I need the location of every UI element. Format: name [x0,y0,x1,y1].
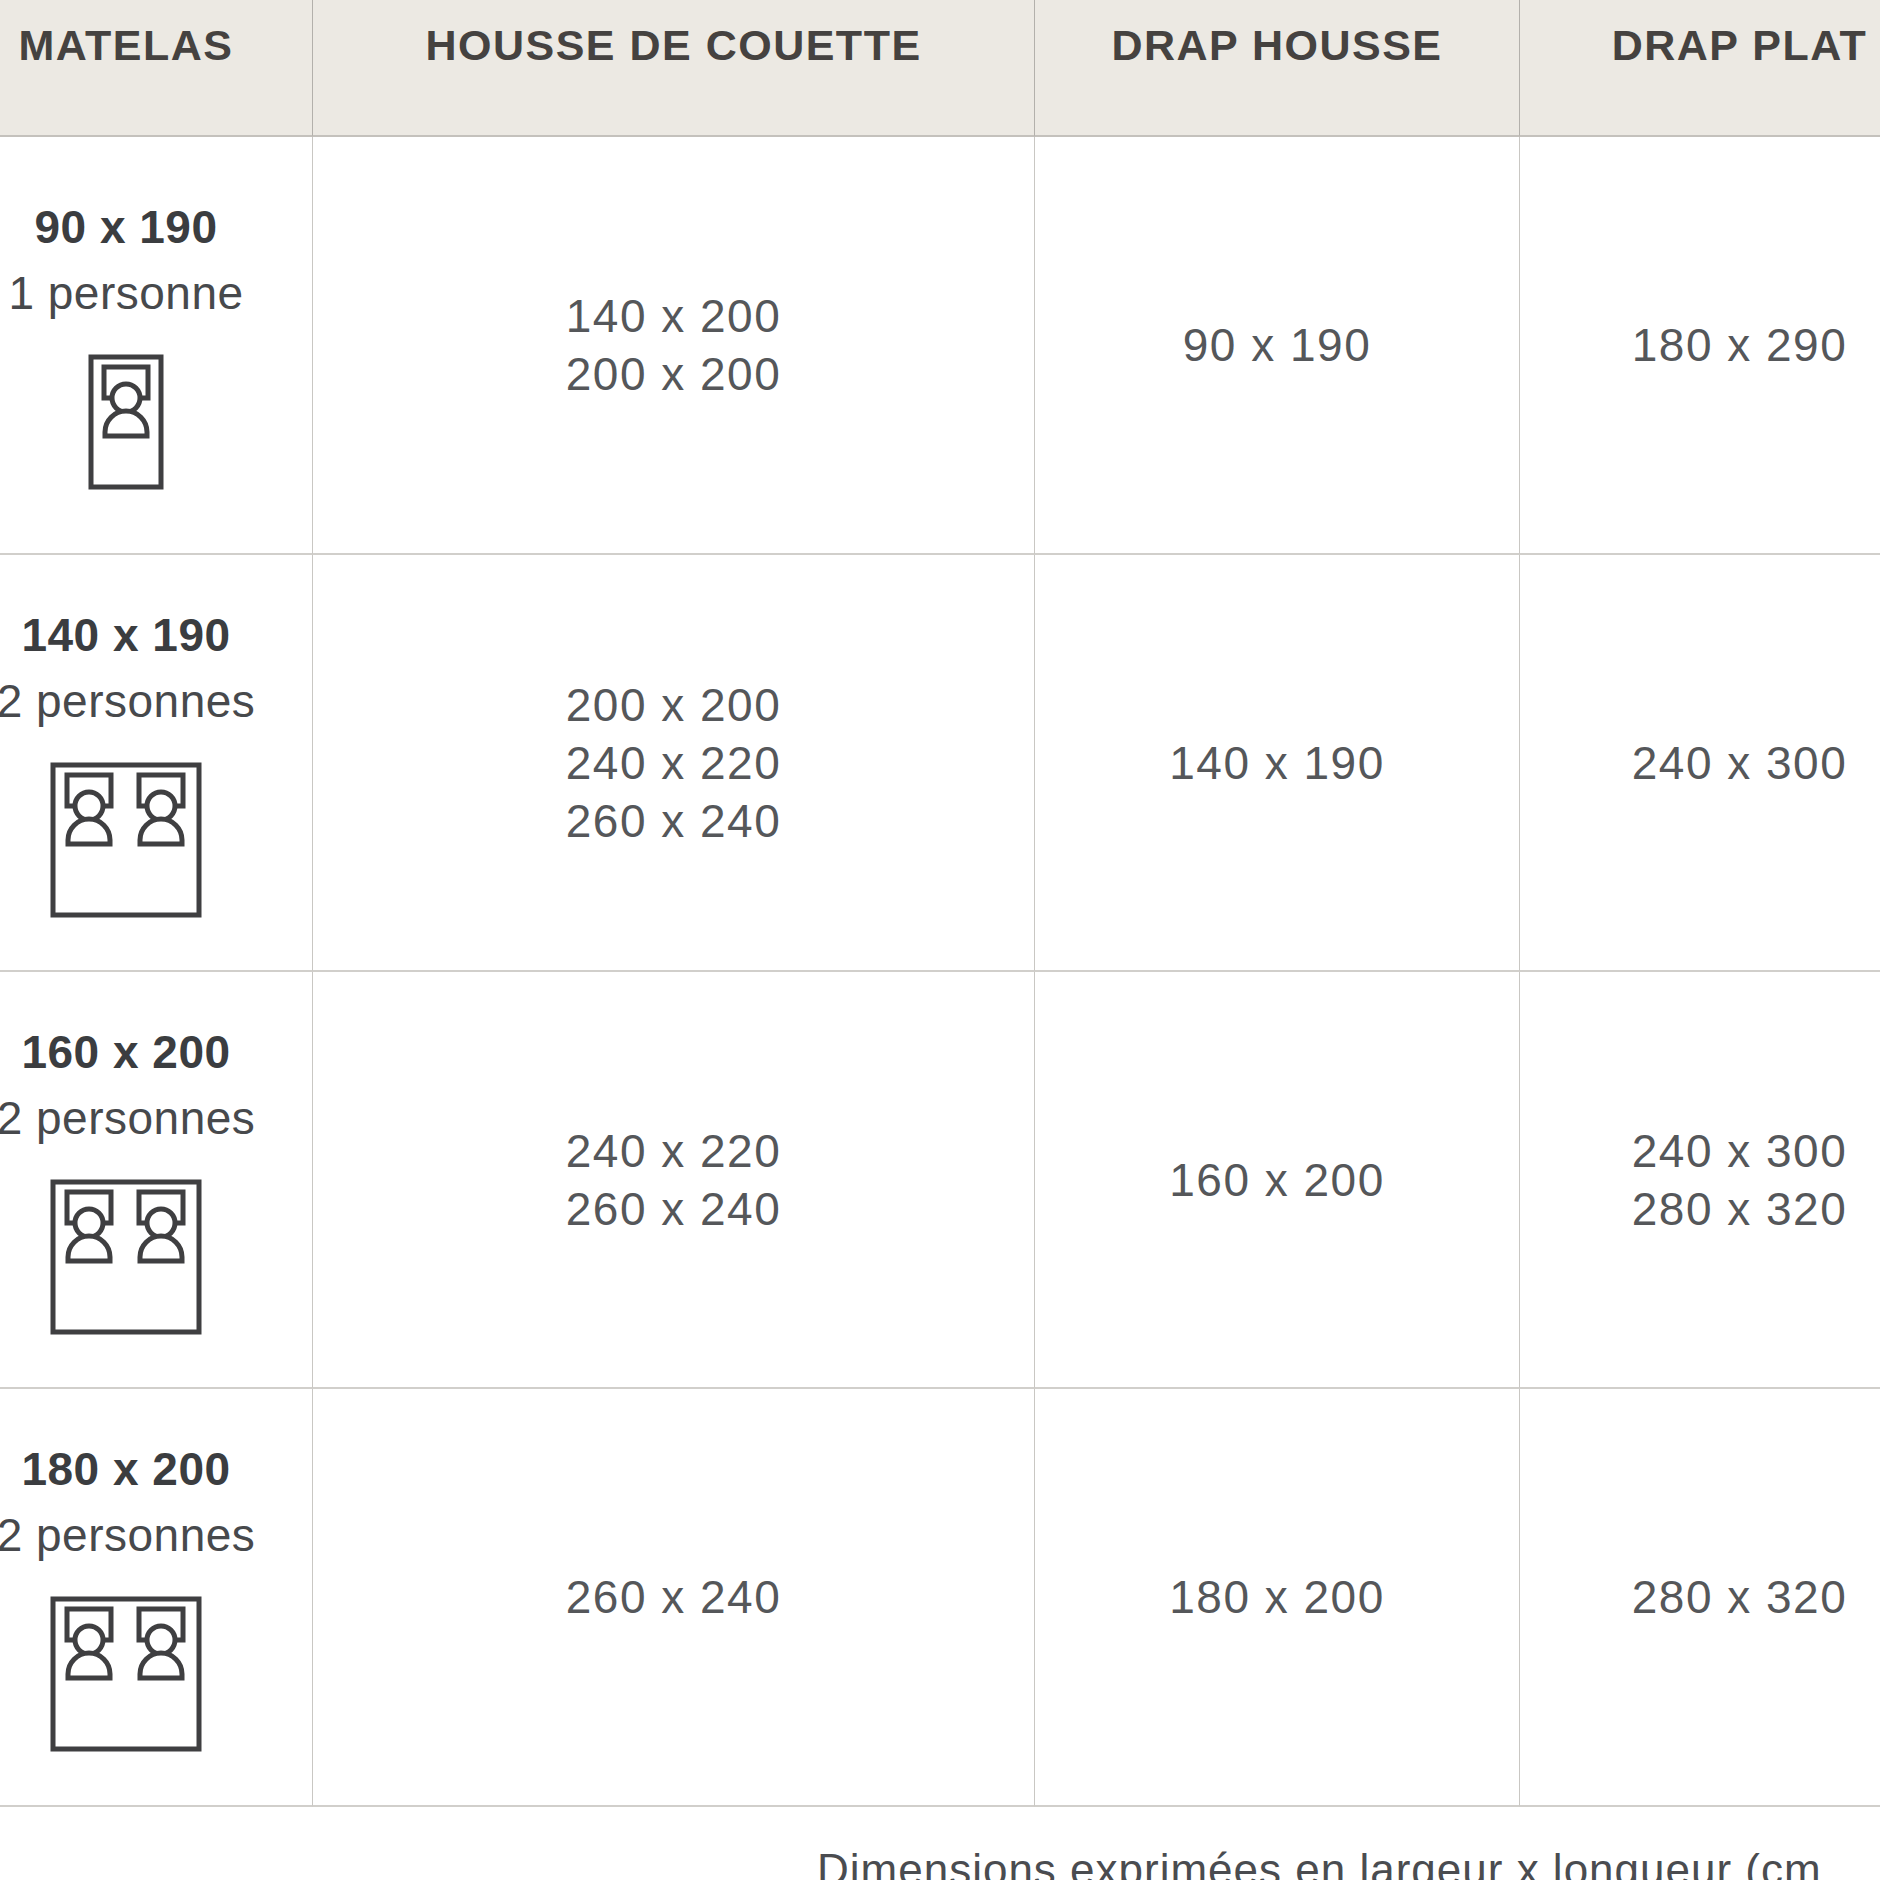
size-value: 260 x 240 [566,792,782,850]
table-row-3-matelas: 160 x 200 2 personnes [0,972,313,1389]
capacity-label: 2 personnes [0,674,255,728]
table-row-4-drap-plat: 280 x 320 [1520,1389,1880,1807]
size-value: 140 x 190 [1169,734,1385,792]
table-row-3-drap-housse: 160 x 200 [1035,972,1520,1389]
size-value: 280 x 320 [1632,1568,1848,1626]
column-header-label: MATELAS [18,21,233,70]
table-row-2-housse-de-couette: 200 x 200 240 x 220 260 x 240 [313,555,1035,972]
double-bed-icon [50,762,202,918]
size-value: 240 x 220 [566,734,782,792]
size-value: 280 x 320 [1632,1180,1848,1238]
size-value: 160 x 200 [1169,1151,1385,1209]
double-bed-icon [50,1596,202,1752]
size-value: 240 x 300 [1632,1122,1848,1180]
table-row-3-housse-de-couette: 240 x 220 260 x 240 [313,972,1035,1389]
mattress-size-label: 160 x 200 [21,1025,230,1079]
size-value: 260 x 240 [566,1180,782,1238]
size-value: 240 x 220 [566,1122,782,1180]
table-row-1-drap-housse: 90 x 190 [1035,137,1520,555]
column-header-label: HOUSSE DE COUETTE [425,21,921,70]
column-header-label: DRAP PLAT [1612,21,1868,70]
table-row-1-drap-plat: 180 x 290 [1520,137,1880,555]
single-bed-icon [88,354,164,490]
capacity-label: 2 personnes [0,1508,255,1562]
table-row-3-drap-plat: 240 x 300 280 x 320 [1520,972,1880,1389]
column-header-housse-de-couette: HOUSSE DE COUETTE [313,0,1035,137]
table-row-2-drap-housse: 140 x 190 [1035,555,1520,972]
mattress-size-label: 140 x 190 [21,608,230,662]
size-value: 200 x 200 [566,345,782,403]
dimensions-note: Dimensions exprimées en largeur x longue… [817,1845,1822,1880]
column-header-drap-plat: DRAP PLAT [1520,0,1880,137]
size-guide-page: MATELAS HOUSSE DE COUETTE DRAP HOUSSE DR… [0,0,1880,1880]
column-header-label: DRAP HOUSSE [1111,21,1442,70]
mattress-size-label: 180 x 200 [21,1442,230,1496]
size-value: 200 x 200 [566,676,782,734]
table-row-4-drap-housse: 180 x 200 [1035,1389,1520,1807]
table-row-1-housse-de-couette: 140 x 200 200 x 200 [313,137,1035,555]
size-value: 240 x 300 [1632,734,1848,792]
table-row-2-drap-plat: 240 x 300 [1520,555,1880,972]
column-header-drap-housse: DRAP HOUSSE [1035,0,1520,137]
double-bed-icon [50,1179,202,1335]
column-header-matelas: MATELAS [0,0,313,137]
capacity-label: 1 personne [8,266,243,320]
table-row-2-matelas: 140 x 190 2 personnes [0,555,313,972]
mattress-size-label: 90 x 190 [34,200,217,254]
table-row-4-housse-de-couette: 260 x 240 [313,1389,1035,1807]
size-value: 260 x 240 [566,1568,782,1626]
size-value: 90 x 190 [1183,316,1371,374]
capacity-label: 2 personnes [0,1091,255,1145]
table-row-4-matelas: 180 x 200 2 personnes [0,1389,313,1807]
table-row-1-matelas: 90 x 190 1 personne [0,137,313,555]
size-value: 140 x 200 [566,287,782,345]
size-value: 180 x 200 [1169,1568,1385,1626]
bedding-size-table: MATELAS HOUSSE DE COUETTE DRAP HOUSSE DR… [0,0,1880,1807]
size-value: 180 x 290 [1632,316,1848,374]
